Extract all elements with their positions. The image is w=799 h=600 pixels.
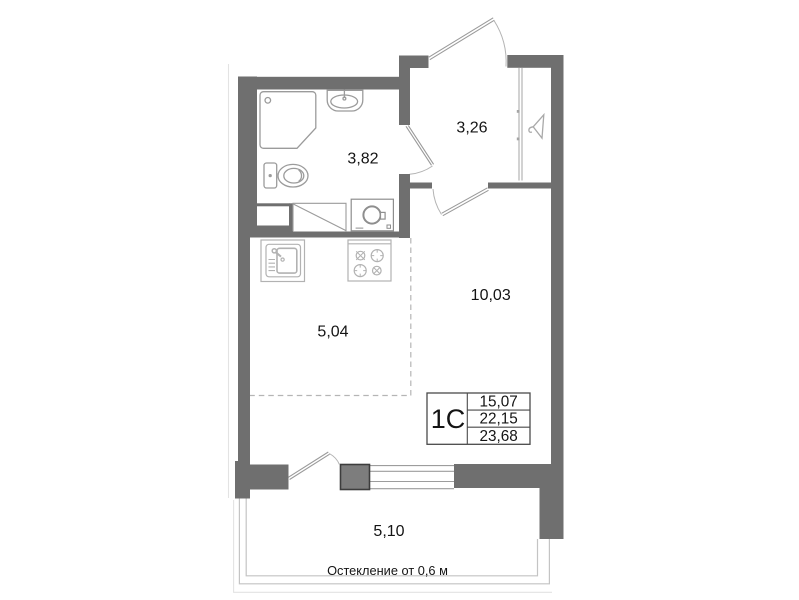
svg-text:22,15: 22,15	[479, 411, 517, 428]
svg-text:10,03: 10,03	[471, 287, 511, 304]
svg-text:23,68: 23,68	[479, 428, 517, 445]
svg-text:Остекление от 0,6 м: Остекление от 0,6 м	[327, 563, 448, 578]
svg-text:1С: 1С	[431, 404, 466, 434]
svg-text:5,10: 5,10	[373, 523, 404, 540]
svg-text:15,07: 15,07	[479, 393, 517, 410]
svg-text:3,82: 3,82	[347, 151, 378, 168]
svg-text:5,04: 5,04	[317, 324, 348, 341]
svg-text:3,26: 3,26	[456, 119, 487, 136]
